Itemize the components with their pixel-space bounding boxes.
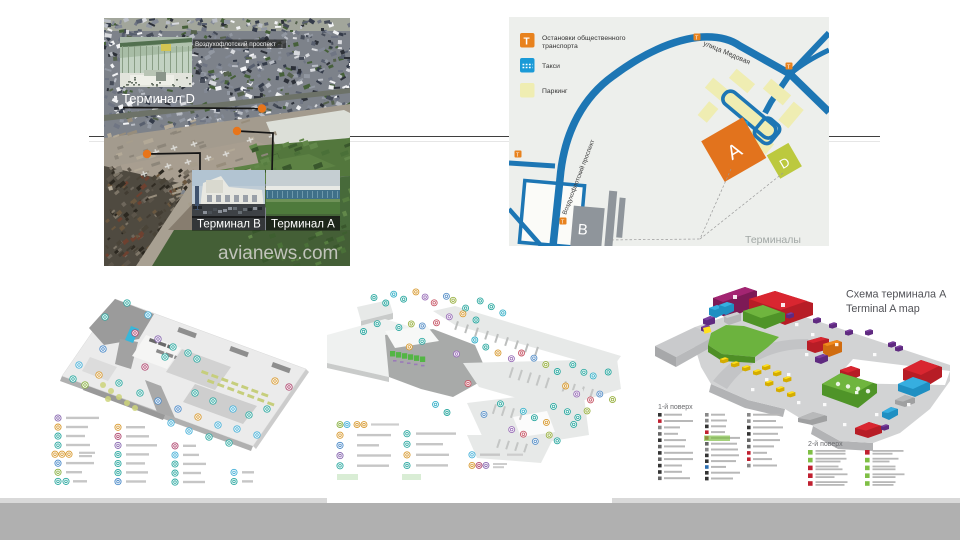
svg-text:Terminal A map: Terminal A map <box>846 303 920 315</box>
svg-text:avianews.com: avianews.com <box>218 243 338 264</box>
svg-text:B: B <box>577 221 588 239</box>
svg-text:Такси: Такси <box>542 63 560 70</box>
svg-text:T: T <box>524 37 530 48</box>
svg-text:Терминал A: Терминал A <box>271 219 335 231</box>
svg-text:2-й поверх: 2-й поверх <box>808 440 843 448</box>
svg-text:Терминал B: Терминал B <box>197 219 261 231</box>
svg-text:Воздухофлотский проспект: Воздухофлотский проспект <box>195 40 276 48</box>
svg-text:1-й поверх: 1-й поверх <box>658 403 693 411</box>
svg-text:Паркинг: Паркинг <box>542 88 568 95</box>
svg-text:Остановки общественного: Остановки общественного <box>542 34 626 42</box>
svg-text:Терминалы: Терминалы <box>745 234 801 246</box>
svg-text:Схема терминала А: Схема терминала А <box>846 289 947 301</box>
svg-text:транспорта: транспорта <box>542 43 578 50</box>
svg-text:Терминал D: Терминал D <box>122 91 195 106</box>
